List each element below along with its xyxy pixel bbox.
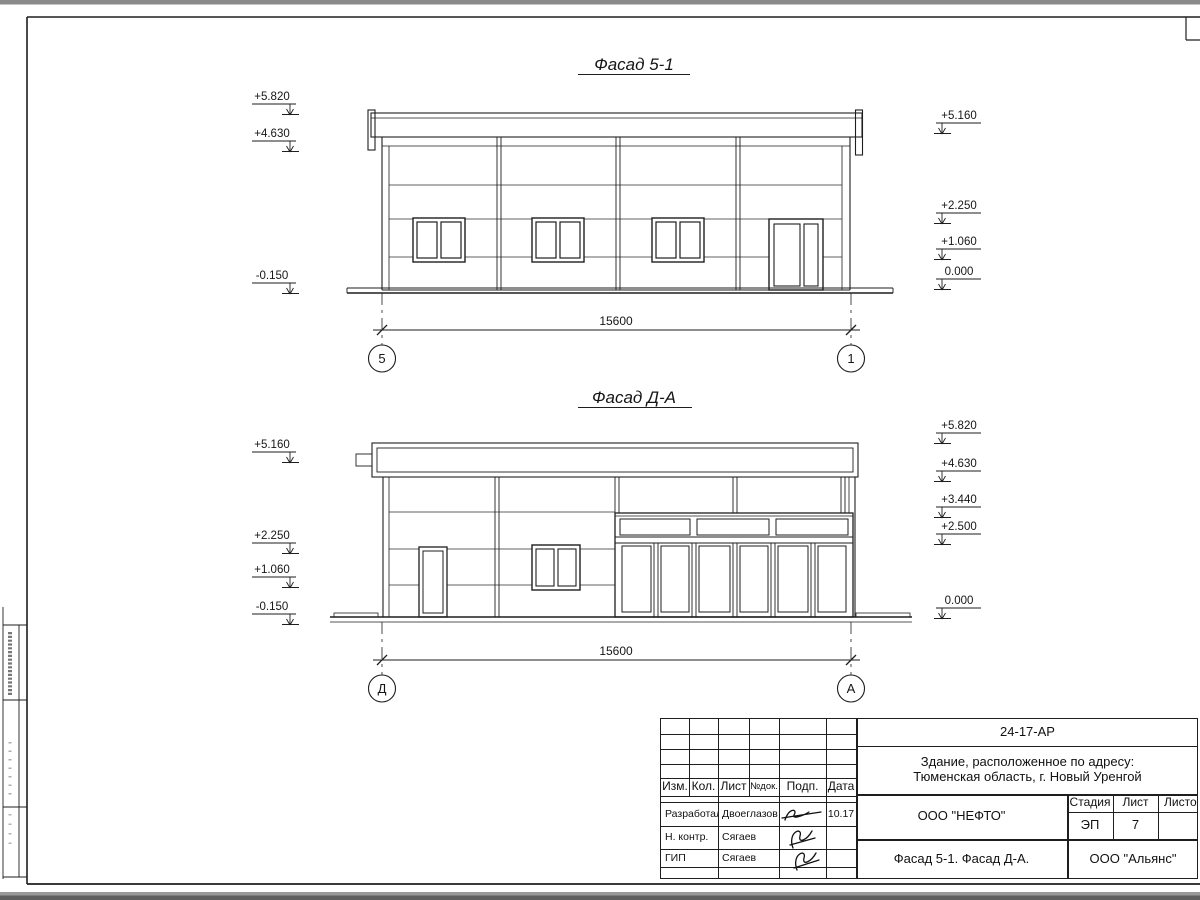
- elevation-mark: +5.820: [934, 420, 981, 444]
- elevation-mark: 0.000: [934, 595, 981, 619]
- elevation-mark: +4.630: [934, 458, 981, 482]
- col-list: Лист: [718, 778, 749, 796]
- sheet-value: 7: [1113, 812, 1158, 839]
- svg-text:+3.440: +3.440: [941, 494, 977, 506]
- elevation-mark: +2.250: [934, 200, 981, 224]
- svg-text:-0.150: -0.150: [256, 270, 289, 282]
- facade-5-1: Фасад 5-1: [252, 55, 981, 372]
- svg-text:+1.060: +1.060: [941, 236, 977, 248]
- col-data: Дата: [826, 778, 856, 796]
- svg-text:0.000: 0.000: [945, 595, 974, 607]
- svg-text:А: А: [847, 681, 856, 696]
- stage-label: Стадия: [1067, 794, 1113, 812]
- wall-mullions: [497, 137, 740, 290]
- svg-text:+4.630: +4.630: [254, 128, 290, 140]
- axis-bubble-left: Д: [369, 675, 396, 702]
- designer-company: ООО "НЕФТО": [856, 794, 1067, 839]
- svg-text:+5.820: +5.820: [941, 420, 977, 432]
- elevation-marks-left: +5.160 +2.250 +1.060 -0.150: [252, 439, 299, 625]
- svg-text:+2.250: +2.250: [254, 530, 290, 542]
- contractor-company: ООО "Альянс": [1067, 839, 1198, 879]
- window: [532, 545, 580, 590]
- elevation-mark: +1.060: [252, 564, 299, 588]
- axis-bubble-right: 1: [838, 345, 865, 372]
- window: [532, 218, 584, 262]
- project-address-line1: Здание, расположенное по адресу:: [921, 755, 1134, 770]
- elevation-marks-right: +5.160 +2.250 +1.060 0.000: [934, 110, 981, 290]
- svg-text:+2.500: +2.500: [941, 521, 977, 533]
- col-podp: Подп.: [779, 778, 826, 796]
- elevation-mark: -0.150: [252, 270, 299, 294]
- svg-text:1: 1: [847, 351, 854, 366]
- drawing-title: Фасад 5-1. Фасад Д-А.: [856, 839, 1067, 879]
- entrance-door: [769, 219, 823, 290]
- axis-bubble-left: 5: [369, 345, 396, 372]
- svg-text:+2.250: +2.250: [941, 200, 977, 212]
- window: [652, 218, 704, 262]
- facade-d-a: Фасад Д-А: [252, 388, 981, 702]
- row-name: Двоеглазов: [718, 802, 779, 826]
- elevation-mark: +4.630: [252, 128, 299, 152]
- sheets-label: Листов: [1158, 794, 1198, 812]
- project-address: Здание, расположенное по адресу: Тюменск…: [856, 746, 1198, 794]
- svg-text:+5.160: +5.160: [254, 439, 290, 451]
- svg-text:+1.060: +1.060: [254, 564, 290, 576]
- elevation-mark: +2.250: [252, 530, 299, 554]
- svg-text:0.000: 0.000: [945, 266, 974, 278]
- elevation-mark: +5.160: [934, 110, 981, 134]
- scanned-drawing-sheet: Фасад 5-1: [0, 0, 1200, 900]
- row-name: Сягаев: [718, 826, 779, 849]
- elevation-mark: +5.160: [252, 439, 299, 463]
- sheet-label: Лист: [1113, 794, 1158, 812]
- row-role: Н. контр.: [661, 826, 718, 849]
- elevation-marks-left: +5.820 +4.630 -0.150: [252, 91, 299, 294]
- signatures: [779, 802, 826, 879]
- project-address-line2: Тюменская область, г. Новый Уренгой: [913, 770, 1141, 785]
- col-kol: Кол.: [689, 778, 718, 796]
- svg-text:+4.630: +4.630: [941, 458, 977, 470]
- side-door: [419, 547, 447, 617]
- col-izm: Изм.: [661, 778, 689, 796]
- stage-value: ЭП: [1067, 812, 1113, 839]
- dimension-label: 15600: [599, 644, 633, 658]
- svg-text:-0.150: -0.150: [256, 601, 289, 613]
- title-block: Изм. Кол. Лист №док. Подп. Дата Разработ…: [660, 718, 1198, 879]
- dimension-line: 15600: [373, 293, 860, 345]
- row-date: [826, 826, 856, 849]
- svg-text:+5.820: +5.820: [254, 91, 290, 103]
- facade-d-a-title: Фасад Д-А: [592, 388, 676, 407]
- row-role: Разработал: [661, 802, 718, 826]
- elevation-mark: -0.150: [252, 601, 299, 625]
- scan-edge-top: [0, 0, 1200, 5]
- elevation-marks-right: +5.820 +4.630 +3.440 +2.500: [934, 420, 981, 619]
- row-date: 10.17: [826, 802, 856, 826]
- row-date: [826, 849, 856, 867]
- svg-text:Фасад Д-А: Фасад Д-А: [592, 388, 676, 407]
- col-ndok: №док.: [749, 778, 779, 796]
- facade-5-1-title: Фасад 5-1: [594, 55, 674, 74]
- elevation-mark: +1.060: [934, 236, 981, 260]
- left-margin-cells: [3, 607, 27, 879]
- scan-edge-bottom: [0, 892, 1200, 900]
- doc-number: 24-17-АР: [856, 719, 1198, 746]
- elevation-mark: +2.500: [934, 521, 981, 545]
- svg-text:+5.160: +5.160: [941, 110, 977, 122]
- svg-text:5: 5: [378, 351, 385, 366]
- row-name: Сягаев: [718, 849, 779, 867]
- elevation-mark: +5.820: [252, 91, 299, 115]
- svg-text:Фасад 5-1: Фасад 5-1: [594, 55, 674, 74]
- storefront: [615, 513, 853, 617]
- axis-bubble-right: А: [838, 675, 865, 702]
- svg-text:Д: Д: [378, 681, 387, 696]
- elevation-mark: 0.000: [934, 266, 981, 290]
- elevation-mark: +3.440: [934, 494, 981, 518]
- dimension-line: 15600: [373, 622, 860, 675]
- dimension-label: 15600: [599, 314, 633, 328]
- window: [413, 218, 465, 262]
- row-role: ГИП: [661, 849, 718, 867]
